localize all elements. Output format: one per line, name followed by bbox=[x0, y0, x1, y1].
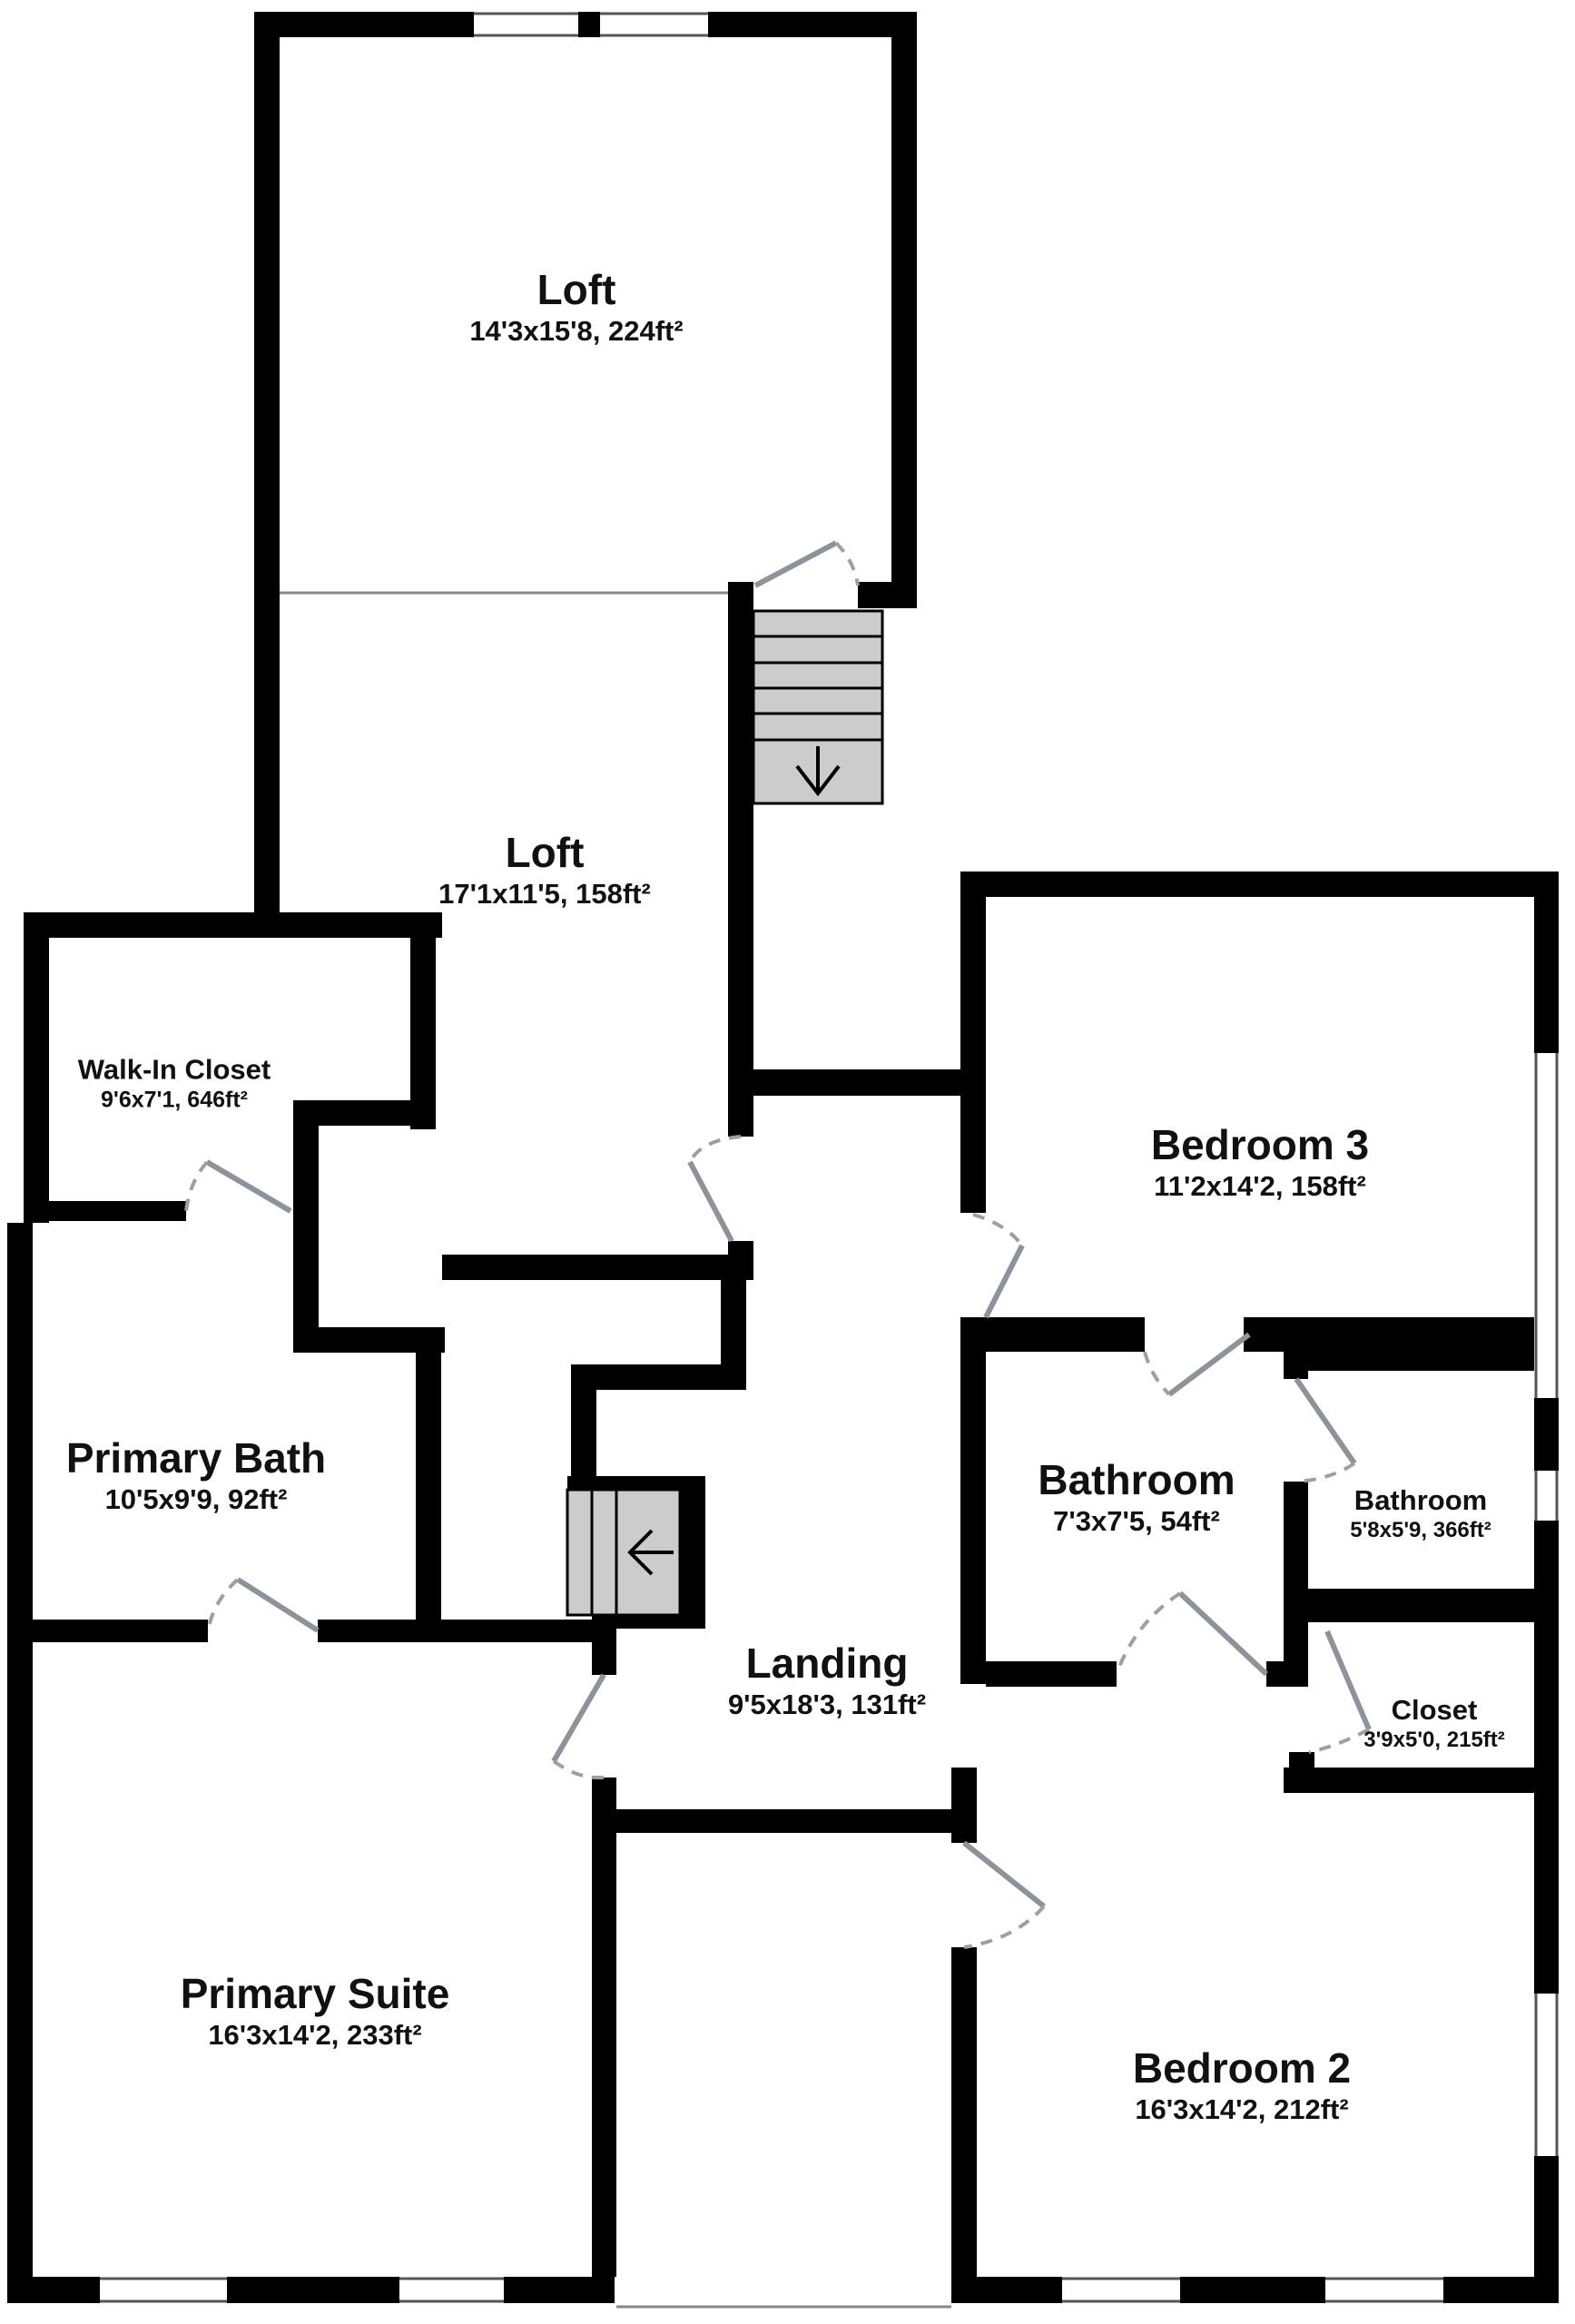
room-label-bedroom-3: Bedroom 3 11'2x14'2, 158ft² bbox=[1151, 1121, 1369, 1205]
door-swing-loft-lower bbox=[690, 1137, 741, 1162]
staircase-down bbox=[753, 611, 882, 803]
door-swing-primary-suite bbox=[554, 1761, 604, 1777]
door-swing-bathroom-bottom bbox=[1117, 1593, 1180, 1674]
door-leaf-bedroom-3 bbox=[986, 1246, 1022, 1317]
door-swing-bedroom-3 bbox=[973, 1215, 1022, 1246]
door-swing-bedroom-2 bbox=[964, 1906, 1044, 1947]
door-leaf-closet bbox=[1327, 1631, 1369, 1729]
door-swing-bathroom-2 bbox=[1296, 1463, 1354, 1482]
door-leaf-loft-upper bbox=[755, 543, 836, 586]
door-leaf-bathroom-2 bbox=[1296, 1379, 1354, 1463]
room-label-landing: Landing 9'5x18'3, 131ft² bbox=[728, 1640, 926, 1723]
room-label-primary-bath: Primary Bath 10'5x9'9, 92ft² bbox=[66, 1434, 326, 1518]
door-leaf-loft-lower bbox=[690, 1162, 732, 1241]
door-swing-walk-in-closet bbox=[186, 1162, 207, 1211]
door-leaf-bathroom-top bbox=[1169, 1334, 1249, 1394]
room-label-loft-upper: Loft 14'3x15'8, 224ft² bbox=[469, 266, 683, 350]
door-leaf-primary-suite bbox=[554, 1675, 604, 1761]
room-label-closet: Closet 3'9x5'0, 215ft² bbox=[1363, 1694, 1505, 1754]
door-leaf-walk-in-closet bbox=[207, 1162, 290, 1211]
room-label-walk-in-closet: Walk-In Closet 9'6x7'1, 646ft² bbox=[78, 1054, 271, 1115]
floor-plan: Loft 14'3x15'8, 224ft² Loft 17'1x11'5, 1… bbox=[0, 0, 1575, 2324]
door-swing-loft-upper bbox=[836, 543, 858, 586]
door-swing-primary-bath bbox=[208, 1580, 238, 1630]
room-label-bathroom-2: Bathroom 5'8x5'9, 366ft² bbox=[1350, 1484, 1491, 1544]
door-leaf-bathroom-bottom bbox=[1180, 1593, 1266, 1674]
room-label-bedroom-2: Bedroom 2 16'3x14'2, 212ft² bbox=[1133, 2044, 1351, 2128]
door-swing-closet bbox=[1309, 1729, 1369, 1752]
door-leaf-primary-bath bbox=[238, 1580, 318, 1630]
room-label-primary-suite: Primary Suite 16'3x14'2, 233ft² bbox=[181, 1970, 450, 2053]
door-leaf-bedroom-2 bbox=[964, 1843, 1044, 1906]
room-label-bathroom: Bathroom 7'3x7'5, 54ft² bbox=[1038, 1456, 1235, 1540]
room-label-loft-lower: Loft 17'1x11'5, 158ft² bbox=[438, 829, 651, 912]
door-swing-bathroom-top bbox=[1145, 1352, 1169, 1394]
staircase-left bbox=[567, 1490, 680, 1615]
